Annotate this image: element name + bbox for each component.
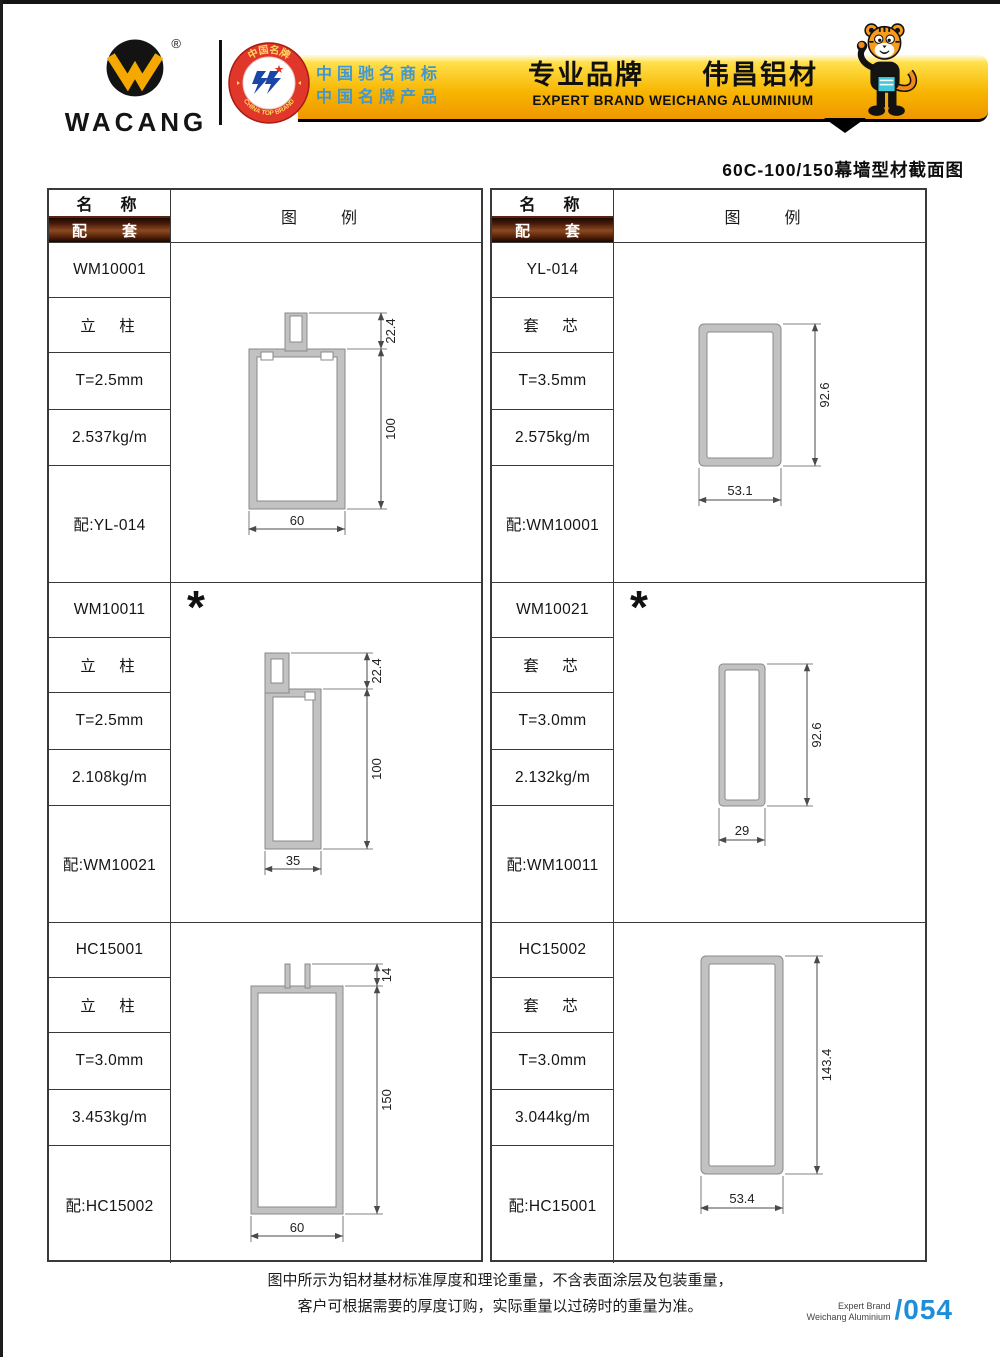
unit-weight: 3.044kg/m [492,1090,613,1146]
thickness: T=3.0mm [49,1033,170,1090]
profile-type: 套 芯 [492,978,613,1033]
dim-height: 100 [369,758,384,780]
column-header-fit: 配 套 [49,218,170,242]
footer-brand-line2: Weichang Aluminium [807,1312,891,1323]
banner-subtitle: EXPERT BRAND WEICHANG ALUMINIUM [488,92,858,110]
matching-profile: 配:HC15002 [49,1146,170,1263]
table-row: WM10001 立 柱 T=2.5mm 2.537kg/m 配:YL-014 [49,243,481,583]
catalog-page: ® WACANG 中国名牌 CHINA TOP BRAND 中国驰名商标 中国名… [0,0,1000,1357]
table-row: WM10021 套 芯 T=3.0mm 2.132kg/m 配:WM10011 … [492,583,925,923]
column-header-name: 名 称 [492,190,613,218]
profile-diagram-wm10021: * 92.6 29 [614,583,925,922]
wacang-logo-icon: ® [105,38,167,100]
dim-width: 53.4 [729,1191,754,1206]
matching-profile: 配:WM10021 [49,806,170,922]
profile-type: 套 芯 [492,298,613,353]
column-header-name: 名 称 [49,190,170,218]
right-table: 名 称 配 套 图 例 YL-014 套 芯 T=3.5mm 2.575kg/m… [490,188,927,1262]
unit-weight: 2.132kg/m [492,750,613,806]
banner-slogan: 专业品牌 伟昌铝材 EXPERT BRAND WEICHANG ALUMINIU… [488,59,858,110]
asterisk-marker: * [630,577,648,637]
logo-wordmark: WACANG [60,107,212,138]
dim-height: 143.4 [819,1049,834,1082]
dim-width: 35 [286,853,300,868]
thickness: T=2.5mm [49,693,170,750]
model-code: YL-014 [492,243,613,298]
banner-honor-line1: 中国驰名商标 [316,63,442,86]
column-header-fit: 配 套 [492,218,613,242]
table-row: HC15001 立 柱 T=3.0mm 3.453kg/m 配:HC15002 [49,923,481,1263]
page-number: /054 [895,1294,954,1326]
table-row: WM10011 立 柱 T=2.5mm 2.108kg/m 配:WM10021 … [49,583,481,923]
scan-border-left [0,0,3,1357]
model-code: HC15001 [49,923,170,978]
banner-honor-text: 中国驰名商标 中国名牌产品 [316,63,442,109]
thickness: T=3.0mm [492,1033,613,1090]
profile-type: 套 芯 [492,638,613,693]
footer-brand: Expert Brand Weichang Aluminium /054 [807,1294,953,1326]
model-code: WM10001 [49,243,170,298]
unit-weight: 2.108kg/m [49,750,170,806]
banner-notch [824,118,866,133]
wacang-logo: ® WACANG [60,38,212,138]
header-divider [219,40,222,125]
dim-width: 29 [734,823,748,838]
registered-mark: ® [171,36,181,51]
scan-border-top [0,0,1000,4]
profile-diagram-wm10001: 22.4 100 60 [171,243,481,582]
profile-diagram-hc15001: 14 150 60 [171,923,481,1263]
dim-stem: 22.4 [383,318,398,343]
dim-width: 60 [290,513,304,528]
dim-height: 92.6 [809,722,824,747]
asterisk-marker: * [187,577,205,637]
profile-diagram-yl014: 92.6 53.1 [614,243,925,582]
left-table-header: 名 称 配 套 图 例 [49,190,481,243]
unit-weight: 2.537kg/m [49,410,170,466]
matching-profile: 配:YL-014 [49,466,170,582]
thickness: T=2.5mm [49,353,170,410]
right-table-header: 名 称 配 套 图 例 [492,190,925,243]
thickness: T=3.0mm [492,693,613,750]
matching-profile: 配:WM10011 [492,806,613,922]
column-header-legend: 图 例 [171,190,481,242]
table-row: HC15002 套 芯 T=3.0mm 3.044kg/m 配:HC15001 … [492,923,925,1263]
dim-height: 100 [383,418,398,440]
column-header-legend: 图 例 [614,190,925,242]
matching-profile: 配:HC15001 [492,1146,613,1263]
dim-width: 60 [290,1220,304,1235]
unit-weight: 3.453kg/m [49,1090,170,1146]
tiger-mascot-icon [848,22,922,118]
page-title: 60C-100/150幕墙型材截面图 [722,157,964,182]
table-row: YL-014 套 芯 T=3.5mm 2.575kg/m 配:WM10001 9… [492,243,925,583]
banner-honor-line2: 中国名牌产品 [316,86,442,109]
dim-width: 53.1 [727,483,752,498]
dim-height: 92.6 [817,382,832,407]
model-code: WM10021 [492,583,613,638]
model-code: WM10011 [49,583,170,638]
profile-type: 立 柱 [49,638,170,693]
profile-type: 立 柱 [49,978,170,1033]
china-top-brand-badge-icon: 中国名牌 CHINA TOP BRAND [227,40,311,126]
profile-type: 立 柱 [49,298,170,353]
footer-note-line1: 图中所示为铝材基材标准厚度和理论重量，不含表面涂层及包装重量， [0,1268,1000,1294]
dim-stem: 14 [379,968,394,982]
profile-diagram-hc15002: 143.4 53.4 [614,923,925,1263]
banner-title: 专业品牌 伟昌铝材 [488,59,858,92]
dim-stem: 22.4 [369,658,384,683]
unit-weight: 2.575kg/m [492,410,613,466]
footer-brand-line1: Expert Brand [807,1301,891,1312]
dim-height: 150 [379,1089,394,1111]
matching-profile: 配:WM10001 [492,466,613,582]
model-code: HC15002 [492,923,613,978]
thickness: T=3.5mm [492,353,613,410]
profile-diagram-wm10011: * 22.4 100 35 [171,583,481,922]
left-table: 名 称 配 套 图 例 WM10001 立 柱 T=2.5mm 2.537kg/… [47,188,483,1262]
